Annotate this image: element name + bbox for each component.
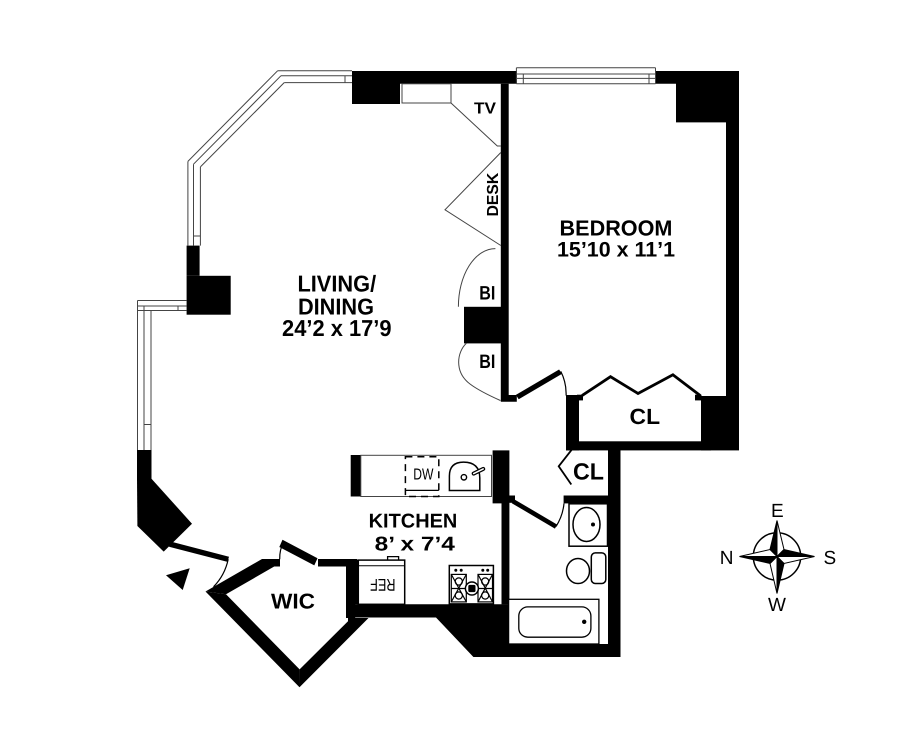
svg-text:DW: DW bbox=[413, 467, 434, 484]
svg-text:15’10 x 11’1: 15’10 x 11’1 bbox=[557, 238, 675, 261]
svg-text:BI: BI bbox=[479, 351, 495, 373]
svg-text:REF: REF bbox=[370, 575, 395, 594]
svg-text:TV: TV bbox=[474, 100, 496, 117]
svg-text:DESK: DESK bbox=[485, 172, 502, 216]
svg-text:24’2 x 17’9: 24’2 x 17’9 bbox=[282, 315, 392, 341]
svg-text:BEDROOM: BEDROOM bbox=[560, 216, 673, 241]
svg-text:CL: CL bbox=[573, 459, 604, 485]
svg-text:S: S bbox=[823, 548, 836, 569]
svg-text:CL: CL bbox=[630, 404, 661, 429]
svg-text:BI: BI bbox=[479, 282, 495, 304]
svg-text:E: E bbox=[771, 501, 784, 522]
svg-text:W: W bbox=[768, 595, 786, 616]
svg-text:8’ x 7’4: 8’ x 7’4 bbox=[375, 533, 456, 555]
svg-text:N: N bbox=[720, 548, 734, 569]
svg-text:KITCHEN: KITCHEN bbox=[369, 511, 458, 533]
svg-text:WIC: WIC bbox=[271, 590, 315, 614]
